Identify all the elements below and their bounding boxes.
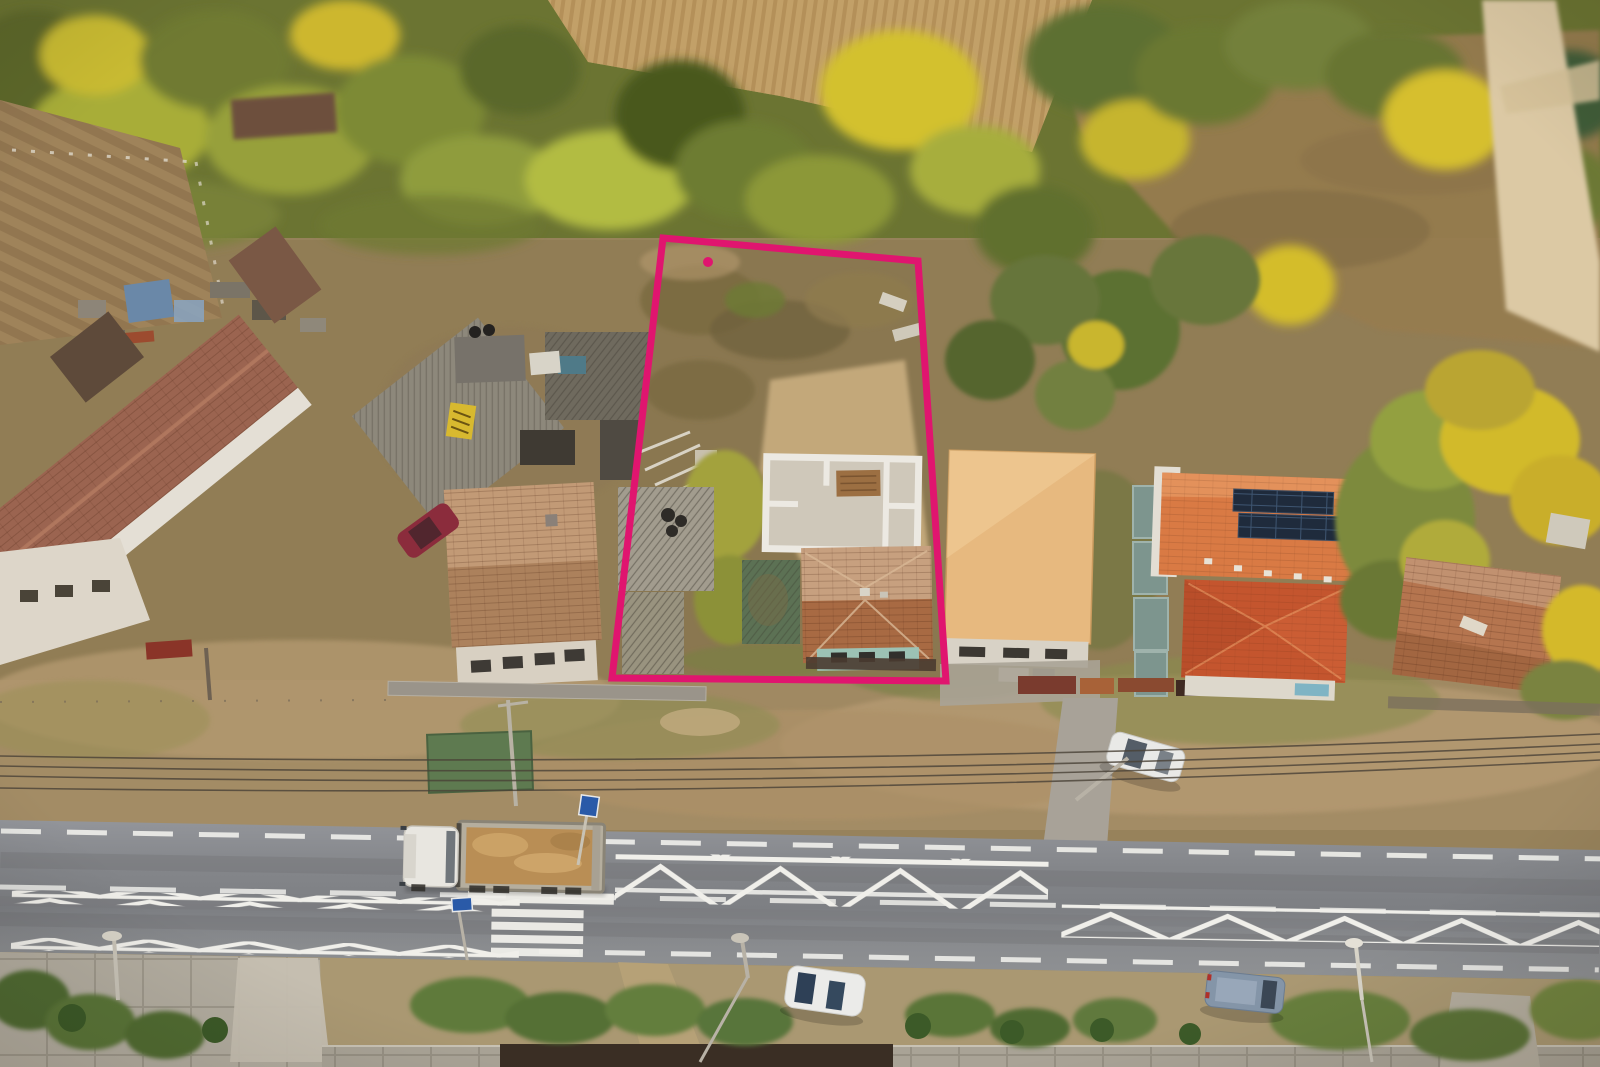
vignette [0, 0, 1600, 1067]
aerial-photo-canvas [0, 0, 1600, 1067]
aerial-photo [0, 0, 1600, 1067]
